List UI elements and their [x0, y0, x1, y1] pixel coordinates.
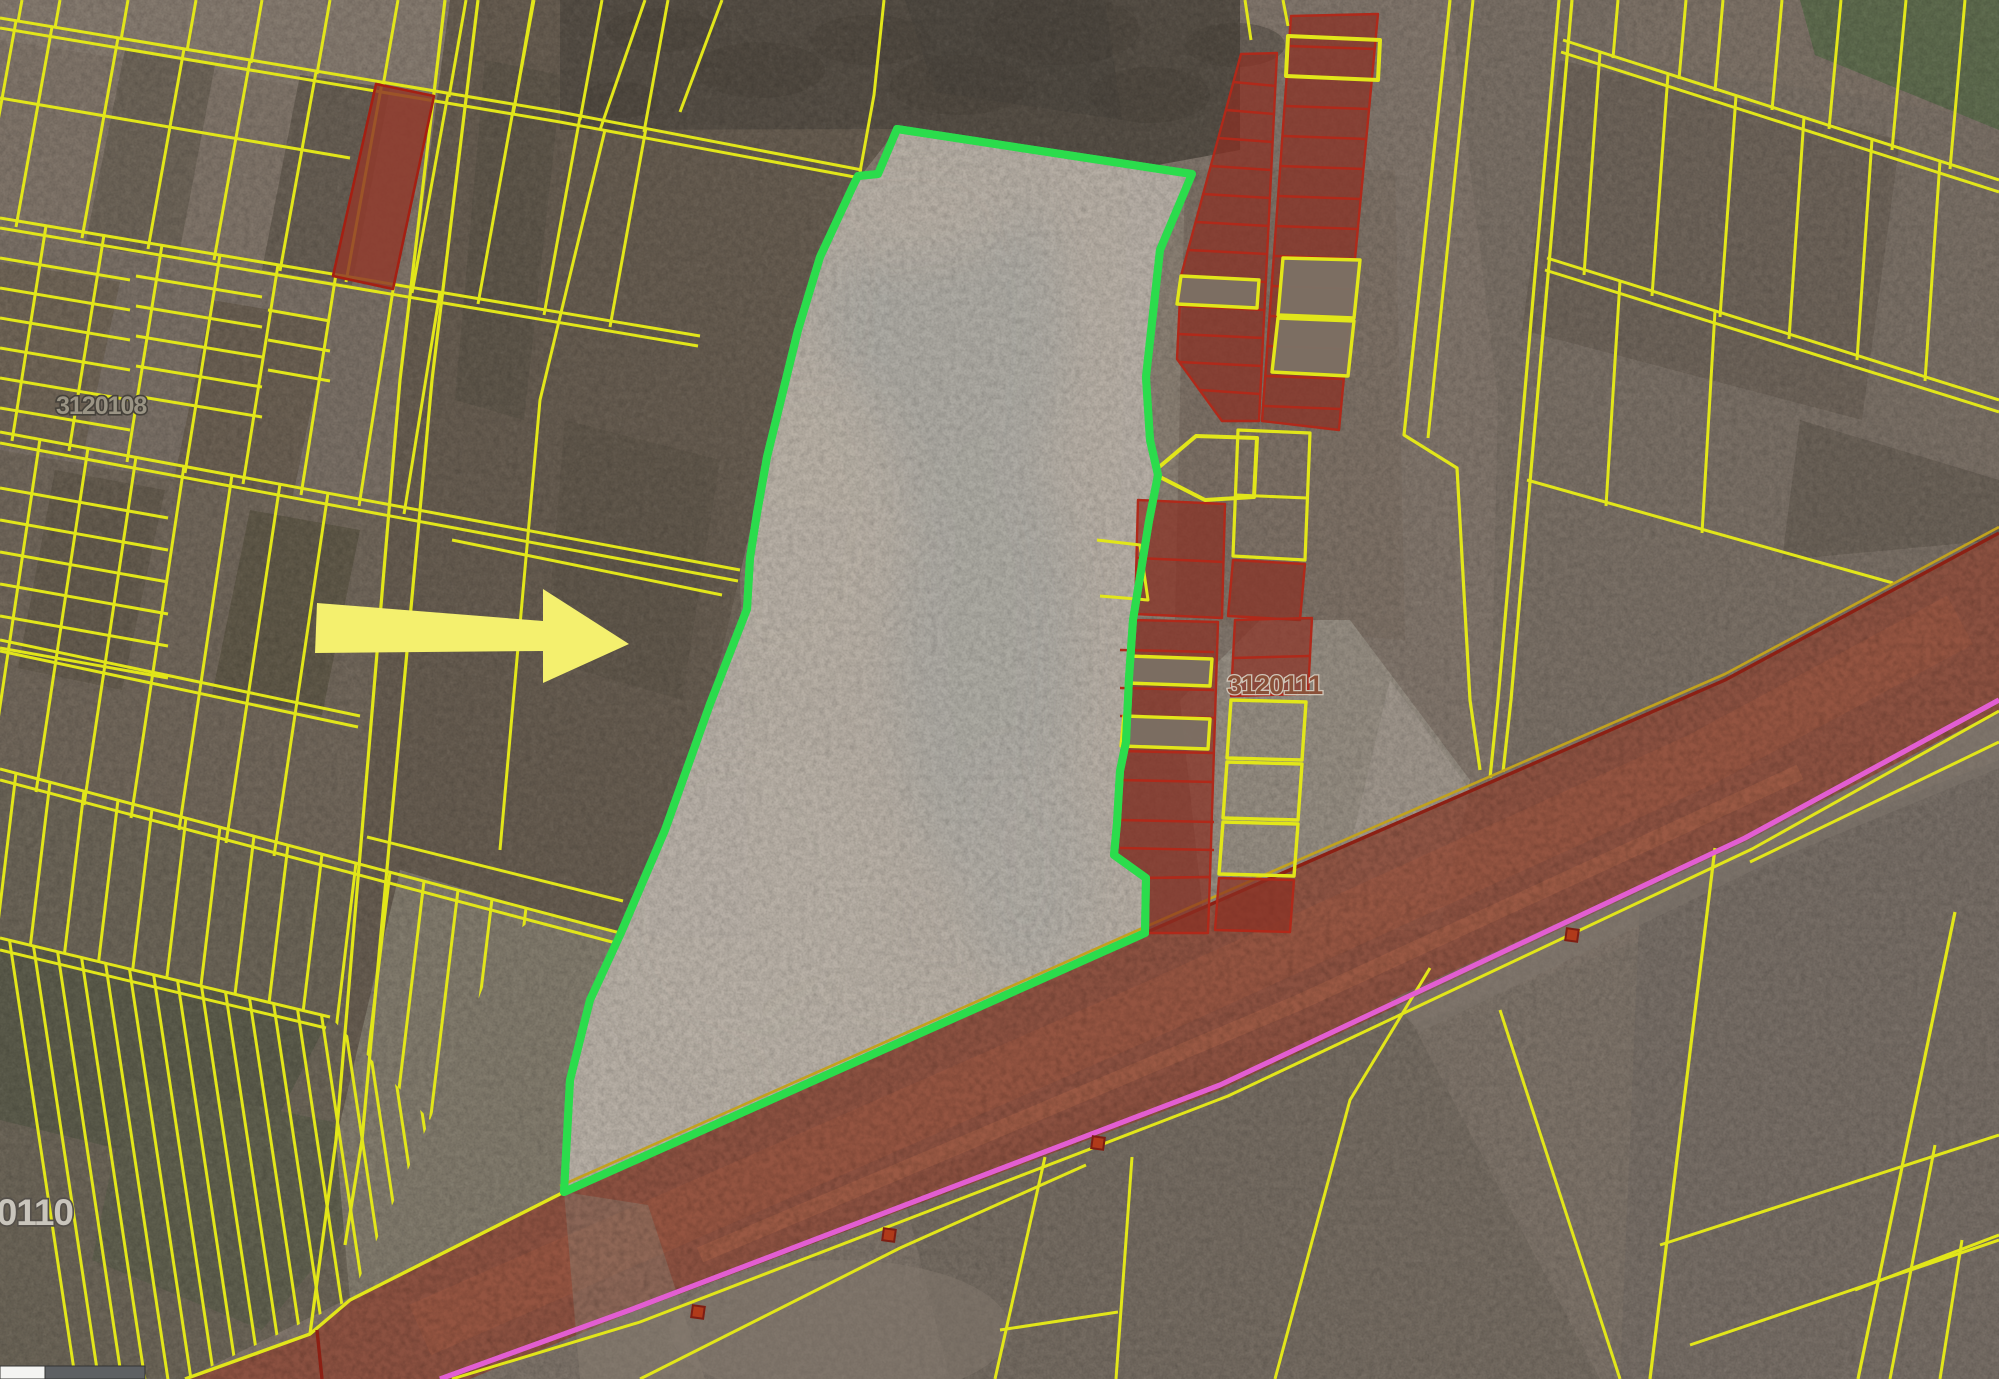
svg-text:3120111: 3120111: [1227, 670, 1323, 700]
svg-text:3120110: 3120110: [0, 1192, 73, 1233]
svg-text:3120108: 3120108: [56, 392, 147, 420]
